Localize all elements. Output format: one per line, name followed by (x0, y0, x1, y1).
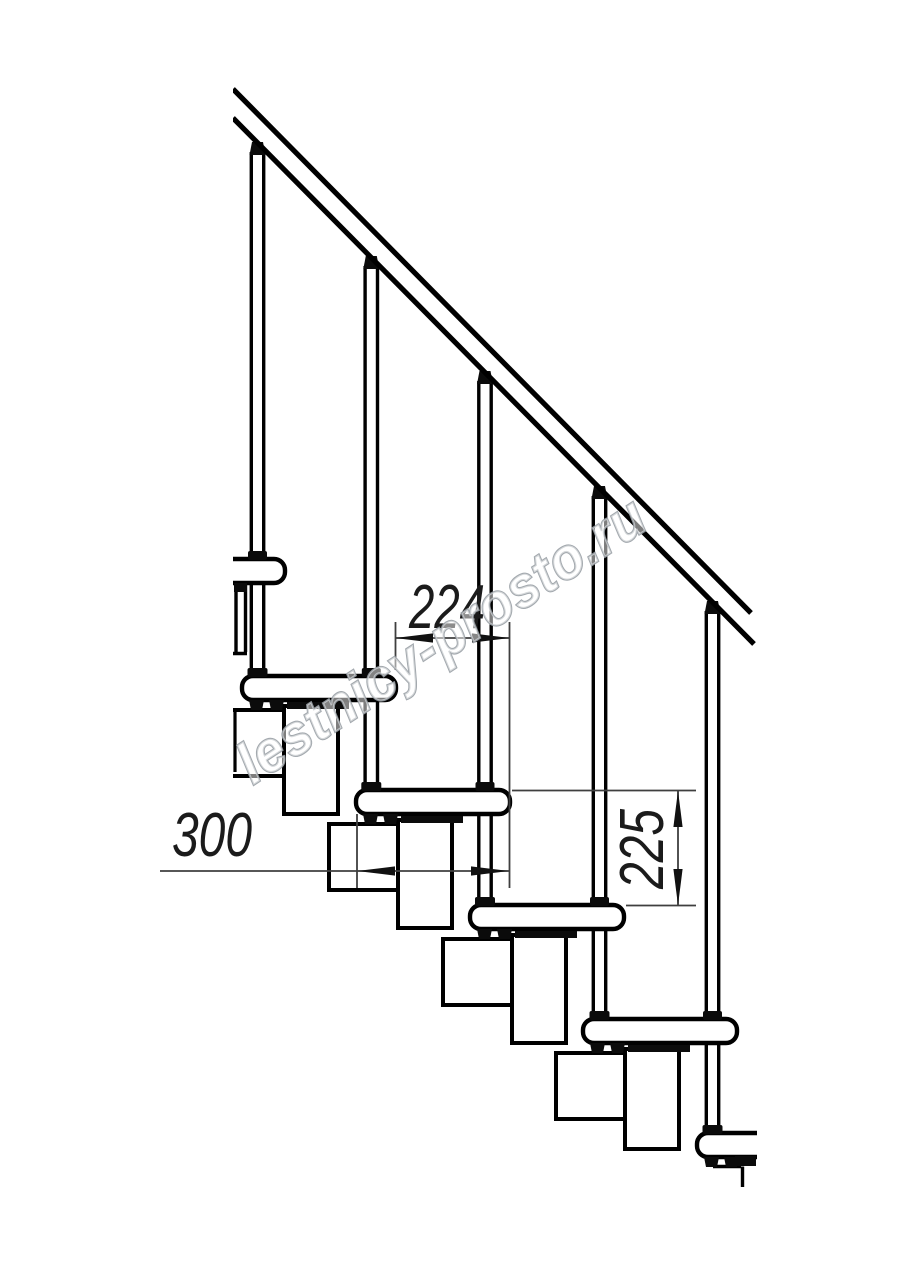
module-under-tread-6 (713, 1167, 743, 1188)
tread-4 (470, 905, 624, 929)
dimension-riser-value: 225 (608, 809, 677, 890)
tread-1 (220, 559, 285, 583)
baluster-1 (251, 152, 263, 672)
tread-6 (697, 1133, 851, 1157)
tread-3 (356, 790, 510, 814)
staircase-drawing-page: 224 300 225 lestnicy-prosto.ru (0, 0, 914, 1280)
tread-5 (583, 1019, 737, 1043)
module-under-tread-4 (443, 935, 566, 1043)
stair-structure (215, 89, 851, 1187)
treads (220, 559, 851, 1157)
handrail-lower-line (233, 118, 754, 644)
dimension-depth-value: 300 (172, 801, 252, 870)
baluster-rail-caps (250, 142, 721, 614)
baluster-5 (706, 611, 718, 1129)
handrail (233, 89, 754, 644)
module-under-tread-5 (556, 1049, 679, 1149)
staircase-technical-drawing: 224 300 225 lestnicy-prosto.ru (0, 0, 914, 1280)
module-under-tread-1 (233, 583, 247, 654)
